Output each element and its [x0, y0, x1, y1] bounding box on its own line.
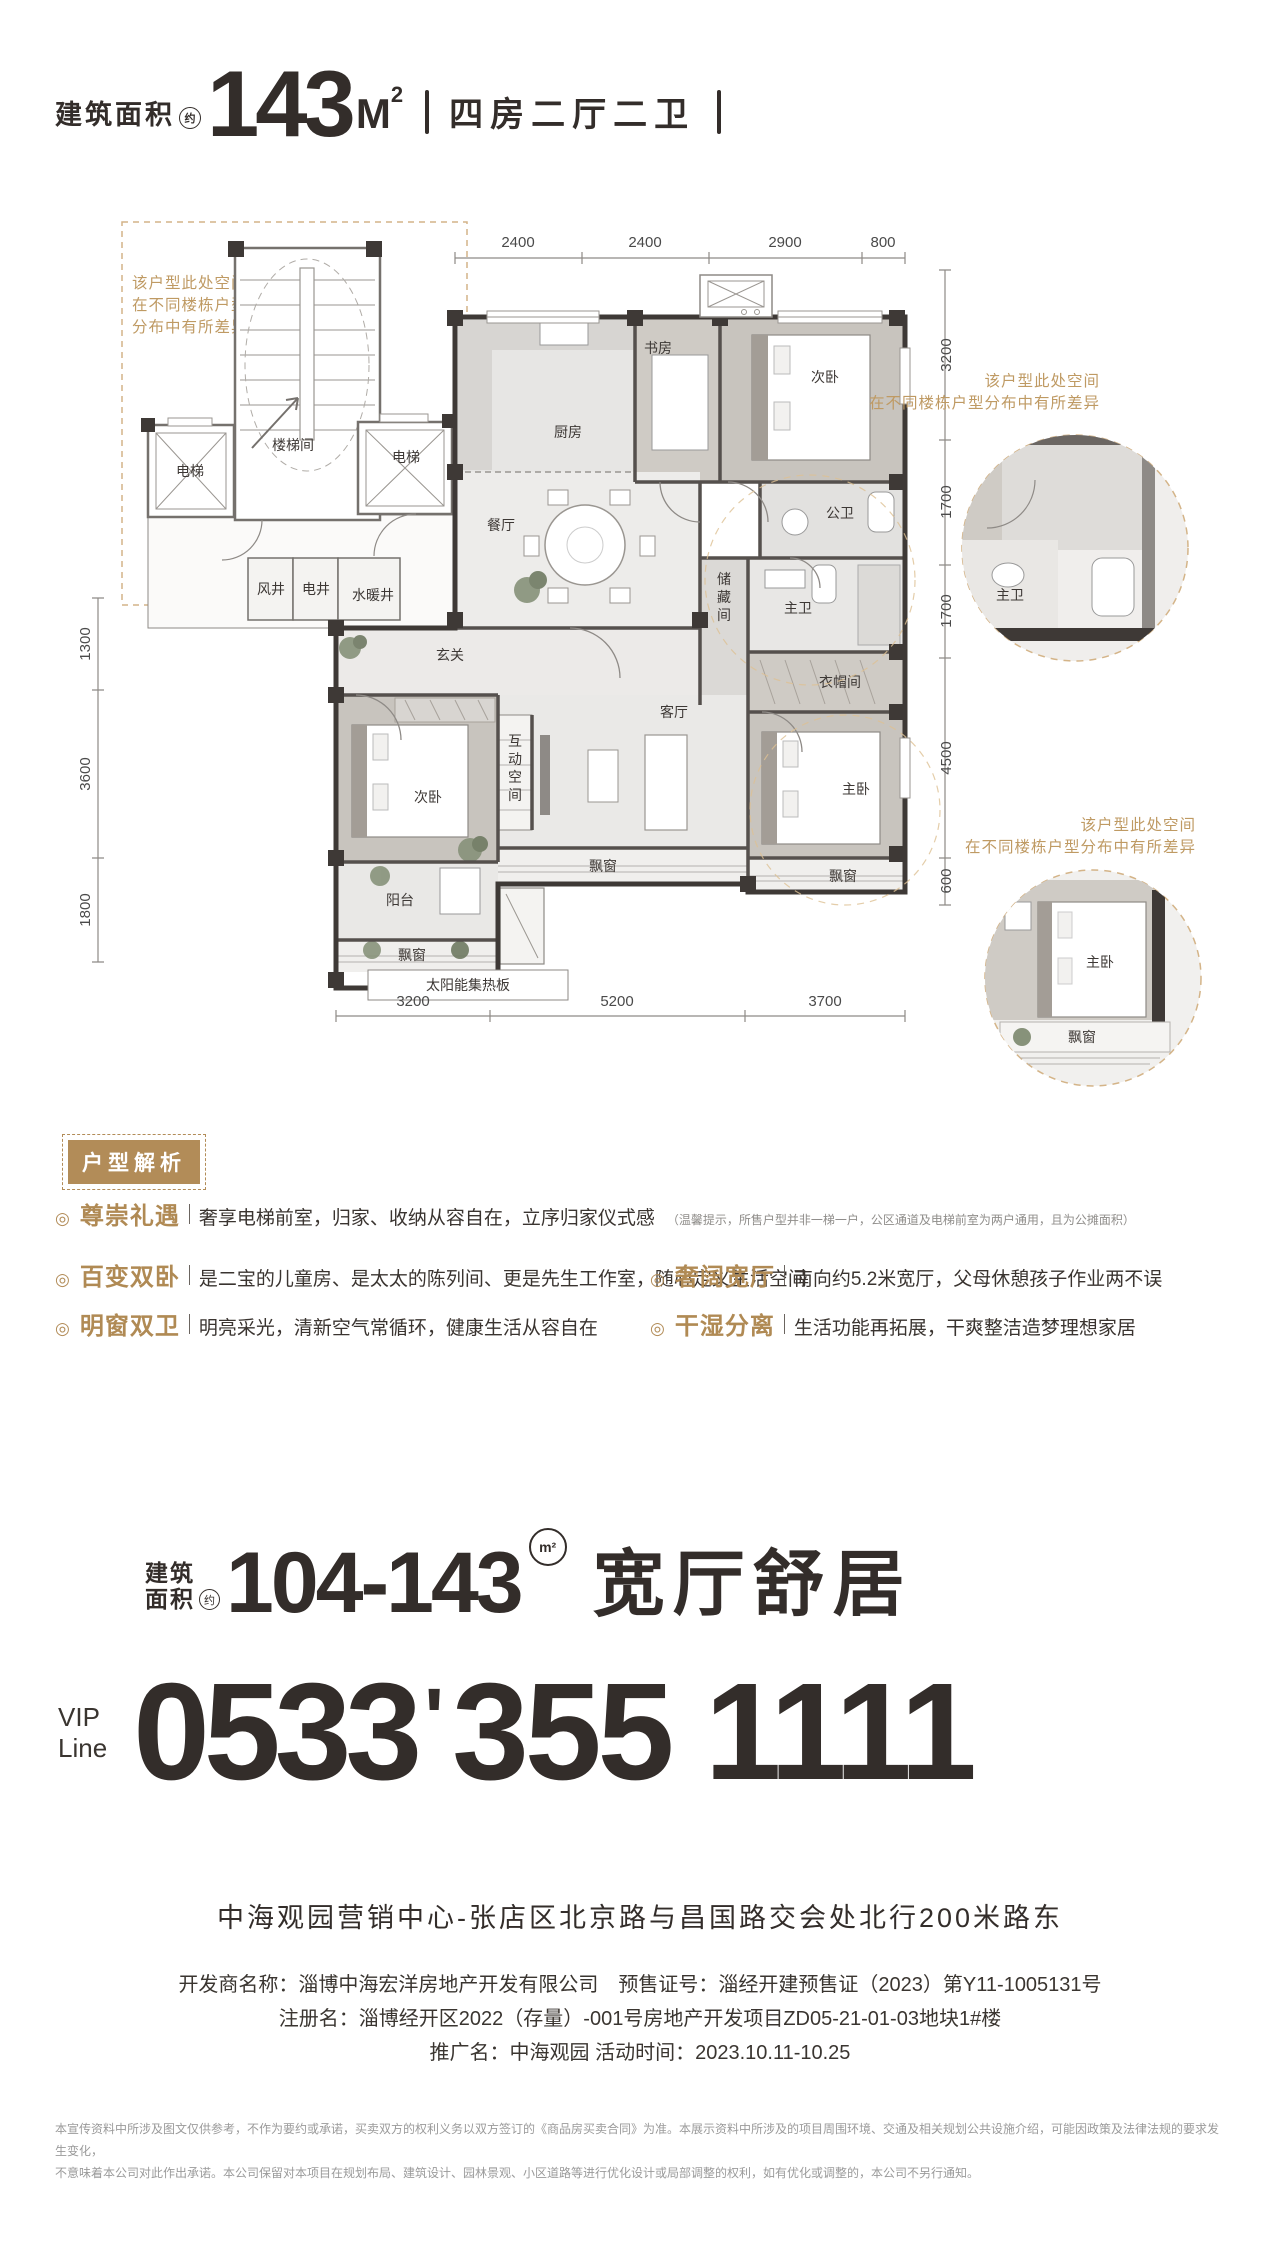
note-line: 在不同楼栋户型分布中有所差异 [965, 838, 1196, 856]
bullet-separator [189, 1204, 190, 1224]
vip-number: 0533 ' 355 1111 [133, 1676, 973, 1789]
callout-master-label: 主卧 [1086, 954, 1114, 970]
room-kitchen: 厨房 [554, 424, 582, 440]
area-label: 建筑面积 [55, 93, 175, 132]
room-entry: 玄关 [436, 647, 464, 663]
dim-right-1: 3200 [938, 338, 955, 371]
approx-circle-icon: 约 [179, 107, 201, 129]
bullet-desc: 明亮采光，清新空气常循环，健康生活从容自在 [199, 1313, 598, 1340]
dim-left-3: 1800 [77, 893, 94, 926]
room-guest-bath: 公卫 [826, 505, 854, 521]
dim-top-4: 800 [870, 234, 895, 251]
svg-text:互: 互 [508, 733, 522, 749]
dim-bottom-3: 3700 [808, 993, 841, 1010]
divider-bar [717, 90, 721, 134]
dims-bottom [336, 1010, 905, 1022]
analysis-badge: 户型解析 [62, 1134, 206, 1190]
room-bedroom3: 次卧 [414, 789, 442, 805]
callout-bath: 该户型此处空间 在不同楼栋户型分布中有所差异 主卫 [869, 372, 1188, 661]
slogan: 宽厅舒居 [593, 1553, 913, 1618]
bullet-living: ◎ 奢阔宽厅 南向约5.2米宽厅，父母休憩孩子作业两不误 [650, 1257, 1162, 1292]
bullet-honor: ◎ 尊崇礼遇 奢享电梯前室，归家、收纳从容自在，立序归家仪式感 （温馨提示，所售… [55, 1196, 1135, 1231]
room-balcony: 阳台 [386, 892, 414, 908]
vip-line: VIP Line 0533 ' 355 1111 [58, 1676, 973, 1789]
variance-note-left: 该户型此处空间 在不同楼栋户型 分布中有所差异 [132, 274, 248, 336]
svg-text:动: 动 [508, 751, 522, 767]
bullet-icon: ◎ [650, 1270, 665, 1290]
area-unit: M2 [356, 82, 403, 138]
legal-line-developer: 开发商名称：淄博中海宏洋房地产开发有限公司 预售证号：淄经开建预售证（2023）… [0, 1968, 1280, 2002]
disclaimer: 本宣传资料中所涉及图文仅供参考，不作为要约或承诺，买卖双方的权利义务以双方签订的… [55, 2118, 1230, 2184]
bullet-title: 明窗双卫 [80, 1306, 180, 1341]
dim-right-5: 600 [938, 868, 955, 893]
dim-top-1: 2400 [501, 234, 534, 251]
bullet-bathrooms: ◎ 明窗双卫 明亮采光，清新空气常循环，健康生活从容自在 [55, 1306, 598, 1341]
bay-window-living: 飘窗 [589, 858, 617, 874]
bullet-separator [784, 1265, 785, 1285]
solar-label: 太阳能集热板 [426, 977, 510, 993]
svg-text:间: 间 [508, 787, 522, 803]
bullet-icon: ◎ [55, 1209, 70, 1229]
floor-plan: 该户型此处空间 在不同楼栋户型 分布中有所差异 楼梯间 电梯 电梯 风井 电井 … [0, 150, 1280, 1090]
bullet-drywet: ◎ 干湿分离 生活功能再拓展，干爽整洁造梦理想家居 [650, 1306, 1136, 1341]
ac-box-top [700, 275, 772, 317]
dim-bottom-2: 5200 [600, 993, 633, 1010]
bullet-separator [189, 1314, 190, 1334]
dim-right-4: 4500 [938, 741, 955, 774]
room-cloakroom: 衣帽间 [819, 674, 861, 690]
callout-bay-label: 飘窗 [1068, 1029, 1096, 1045]
legal-info: 开发商名称：淄博中海宏洋房地产开发有限公司 预售证号：淄经开建预售证（2023）… [0, 1968, 1280, 2070]
svg-text:间: 间 [717, 607, 731, 623]
approx-circle-icon: 约 [199, 1589, 220, 1610]
disclaimer-line: 本宣传资料中所涉及图文仅供参考，不作为要约或承诺，买卖双方的权利义务以双方签订的… [55, 2118, 1230, 2162]
legal-line-registration: 注册名：淄博经开区2022（存量）-001号房地产开发项目ZD05-21-01-… [0, 2002, 1280, 2036]
room-elevator-right: 电梯 [392, 449, 420, 465]
bullet-separator [189, 1265, 190, 1285]
room-living: 客厅 [660, 704, 688, 720]
room-elevator-left: 电梯 [176, 463, 204, 479]
room-master-bath: 主卫 [784, 600, 812, 616]
bullet-icon: ◎ [55, 1270, 70, 1290]
vip-main-number: 355 1111 [452, 1676, 973, 1789]
room-wind-well: 风井 [257, 581, 285, 597]
dims-top [455, 252, 905, 264]
dim-right-2: 1700 [938, 485, 955, 518]
page-header: 建筑面积 约 143 M2 四房二厅二卫 [55, 38, 1225, 142]
bullet-desc: 南向约5.2米宽厅，父母休憩孩子作业两不误 [794, 1264, 1162, 1291]
vip-label: VIP Line [58, 1702, 107, 1764]
room-dining: 餐厅 [487, 517, 515, 533]
range-area-label: 建筑 面积 [145, 1560, 195, 1612]
range-unit-icon: m² [529, 1528, 567, 1566]
room-elec-well: 电井 [302, 581, 330, 597]
room-master: 主卧 [842, 781, 870, 797]
bullet-title: 干湿分离 [675, 1306, 775, 1341]
area-value: 143 [207, 65, 352, 142]
disclaimer-line: 不意味着本公司对此作出承诺。本公司保留对本项目在规划布局、建筑设计、园林景观、小… [55, 2162, 1230, 2184]
dim-right-3: 1700 [938, 594, 955, 627]
bullet-icon: ◎ [650, 1319, 665, 1339]
bullet-desc: 生活功能再拓展，干爽整洁造梦理想家居 [794, 1313, 1136, 1340]
room-water-well: 水暖井 [352, 587, 394, 603]
callout-master: 该户型此处空间 在不同楼栋户型分布中有所差异 主卧 飘窗 [965, 816, 1201, 1086]
dim-top-3: 2900 [768, 234, 801, 251]
bullet-title: 尊崇礼遇 [80, 1196, 180, 1231]
legal-line-promotion: 推广名：中海观园 活动时间：2023.10.11-10.25 [0, 2036, 1280, 2070]
divider-bar [425, 90, 429, 134]
vip-separator: ' [424, 1670, 444, 1767]
callout-master-bath-label: 主卫 [996, 587, 1024, 603]
note-line: 在不同楼栋户型分布中有所差异 [869, 394, 1100, 412]
svg-text:藏: 藏 [717, 589, 731, 605]
room-storage: 储 藏 间 [717, 571, 731, 623]
note-line: 该户型此处空间 [1080, 816, 1196, 834]
sales-address: 中海观园营销中心-张店区北京路与昌国路交会处北行200米路东 [0, 1896, 1280, 1935]
bullet-note: （温馨提示，所售户型并非一梯一户，公区通道及电梯前室为两户通用，且为公摊面积） [667, 1211, 1135, 1228]
svg-text:储: 储 [717, 571, 731, 587]
bullet-desc: 奢享电梯前室，归家、收纳从容自在，立序归家仪式感 [199, 1203, 655, 1230]
svg-text:空: 空 [508, 769, 522, 785]
area-unit-sup: 2 [391, 82, 403, 107]
range-value: 104-143 [226, 1549, 521, 1618]
layout-type: 四房二厅二卫 [449, 87, 695, 136]
range-banner: 建筑 面积 约 104-143 m² 宽厅舒居 [145, 1528, 913, 1618]
dim-left-2: 3600 [77, 757, 94, 790]
bay-window-master: 飘窗 [829, 868, 857, 884]
bullet-icon: ◎ [55, 1319, 70, 1339]
note-line: 在不同楼栋户型 [132, 296, 248, 314]
bay-window-balcony: 飘窗 [398, 947, 426, 963]
dim-left-1: 1300 [77, 627, 94, 660]
vip-prefix: 0533 [133, 1676, 416, 1789]
dim-bottom-1: 3200 [396, 993, 429, 1010]
room-stairwell: 楼梯间 [272, 437, 314, 453]
note-line: 该户型此处空间 [132, 274, 248, 292]
note-line: 分布中有所差异 [132, 318, 248, 336]
room-bedroom2: 次卧 [811, 369, 839, 385]
room-study: 书房 [644, 340, 672, 356]
dim-top-2: 2400 [628, 234, 661, 251]
note-line: 该户型此处空间 [984, 372, 1100, 390]
bullet-title: 百变双卧 [80, 1257, 180, 1292]
bullet-separator [784, 1314, 785, 1334]
bullet-title: 奢阔宽厅 [675, 1257, 775, 1292]
